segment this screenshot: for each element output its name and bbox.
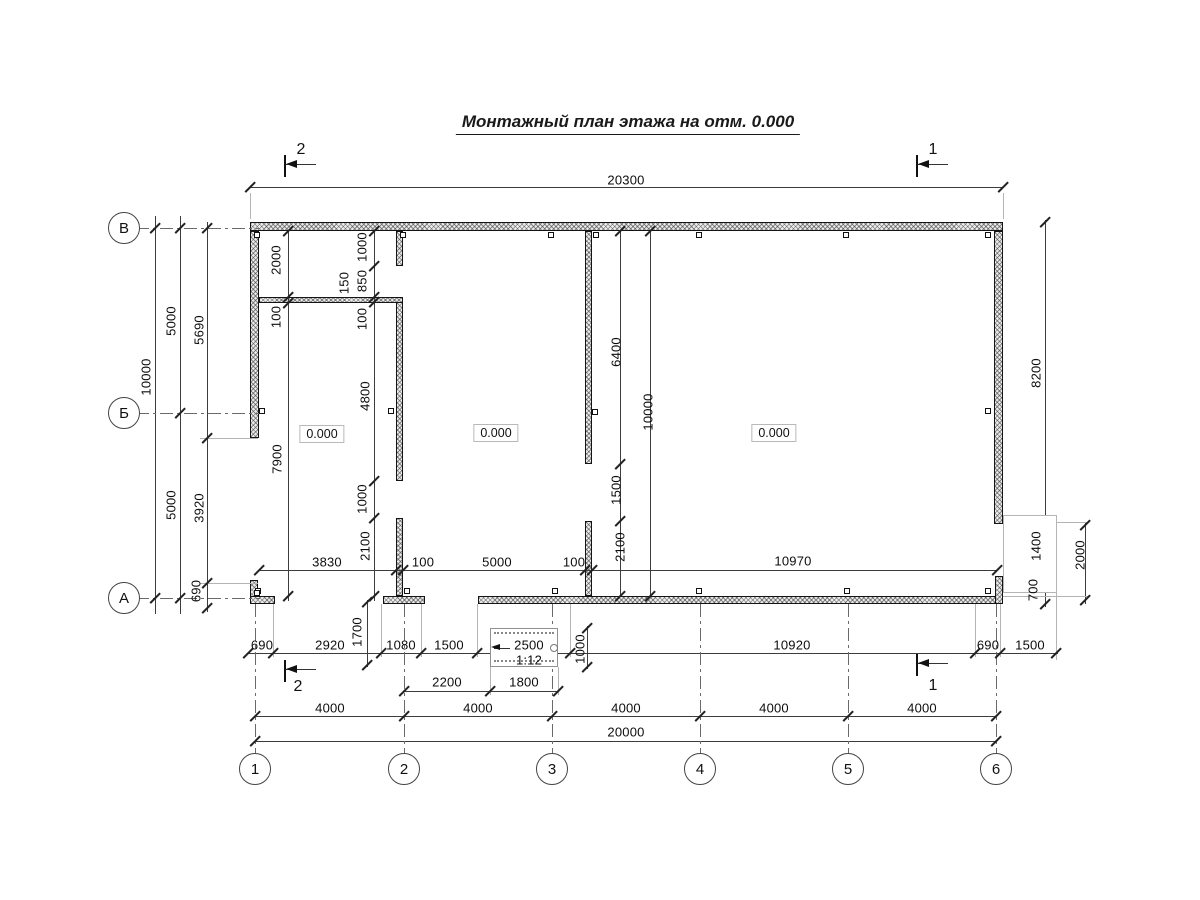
axis-line-vertical	[996, 604, 997, 754]
dimension-line	[255, 716, 996, 717]
axis-circle: Б	[108, 397, 140, 429]
extension-line	[250, 193, 251, 219]
axis-line-vertical	[404, 604, 405, 754]
dimension-label: 1500	[1015, 638, 1045, 653]
dimension-label: 5690	[192, 315, 207, 345]
dimension-label: 1500	[434, 638, 464, 653]
dimension-label: 3830	[312, 555, 342, 570]
dimension-label: 1400	[1029, 531, 1044, 561]
section-marker-number: 2	[297, 141, 306, 159]
wall-segment	[250, 231, 259, 438]
anchor-plate	[593, 232, 599, 238]
dimension-line	[404, 691, 558, 692]
extension-line	[421, 604, 422, 657]
floor-plan-drawing: Монтажный план этажа на отм. 0.000 20300…	[0, 0, 1200, 900]
drawing-title: Монтажный план этажа на отм. 0.000	[456, 112, 800, 135]
dimension-label: 150	[337, 272, 352, 294]
axis-circle: 1	[239, 753, 271, 785]
wall-segment	[396, 302, 403, 481]
axis-line-vertical	[700, 604, 701, 754]
dimension-label: 4000	[907, 701, 937, 716]
wall-segment	[478, 596, 1003, 604]
section-marker-arrow	[918, 160, 929, 168]
dimension-label: 1080	[386, 638, 416, 653]
axis-circle: А	[108, 582, 140, 614]
dimension-line	[288, 231, 289, 601]
section-marker-arrow	[918, 659, 929, 667]
dimension-label: 1:12	[516, 653, 542, 668]
extension-line	[570, 604, 571, 657]
dimension-label: 7900	[270, 444, 285, 474]
dimension-label: 4000	[463, 701, 493, 716]
extension-line	[975, 604, 976, 657]
dimension-label: 1000	[355, 484, 370, 514]
wall-segment	[250, 222, 1003, 231]
room-elevation-label: 0.000	[751, 424, 796, 442]
dimension-label: 690	[251, 638, 273, 653]
dimension-label: 10970	[774, 554, 811, 569]
axis-circle: 4	[684, 753, 716, 785]
section-marker-number: 1	[929, 677, 938, 695]
anchor-plate	[985, 232, 991, 238]
wall-segment	[585, 521, 592, 596]
axis-line-vertical	[552, 604, 553, 754]
dimension-label: 4000	[315, 701, 345, 716]
anchor-plate	[254, 590, 260, 596]
axis-circle: 5	[832, 753, 864, 785]
wall-segment	[396, 518, 403, 596]
extension-line	[1003, 193, 1004, 219]
dimension-line	[367, 600, 368, 667]
dimension-label: 20000	[607, 725, 644, 740]
dimension-label: 1000	[355, 232, 370, 262]
dimension-label: 6400	[609, 337, 624, 367]
anchor-plate	[696, 232, 702, 238]
dimension-label: 5000	[482, 555, 512, 570]
wall-segment	[995, 576, 1003, 604]
dimension-line	[207, 222, 208, 612]
dimension-line	[180, 216, 181, 614]
extension-line	[1000, 604, 1001, 657]
axis-circle: 2	[388, 753, 420, 785]
dimension-label: 10000	[139, 358, 154, 395]
dimension-label: 1700	[350, 617, 365, 647]
section-marker-number: 1	[929, 141, 938, 159]
dimension-label: 4000	[759, 701, 789, 716]
axis-line-horizontal	[136, 413, 264, 414]
dimension-label: 5000	[164, 306, 179, 336]
extension-line	[381, 604, 382, 657]
anchor-plate	[388, 408, 394, 414]
anchor-plate	[254, 232, 260, 238]
dimension-label: 1500	[609, 475, 624, 505]
dimension-label: 5000	[164, 490, 179, 520]
dimension-line	[155, 216, 156, 614]
ramp-arrow-head	[491, 644, 500, 650]
extension-line	[477, 604, 478, 657]
axis-circle: 6	[980, 753, 1012, 785]
dimension-label: 2100	[613, 532, 628, 562]
axis-line-vertical	[848, 604, 849, 754]
section-marker-arrow	[286, 665, 297, 673]
dimension-line	[248, 653, 1058, 654]
extension-line	[1003, 596, 1088, 597]
dimension-label: 100	[355, 308, 370, 330]
room-elevation-label: 0.000	[299, 425, 344, 443]
dimension-line	[374, 231, 375, 601]
anchor-plate	[404, 588, 410, 594]
anchor-plate	[548, 232, 554, 238]
dimension-label: 2100	[358, 531, 373, 561]
dimension-label: 2200	[432, 675, 462, 690]
dimension-label: 2920	[315, 638, 345, 653]
wall-segment	[383, 596, 425, 604]
axis-line-vertical	[255, 604, 256, 754]
dimension-label: 100	[269, 306, 284, 328]
room-elevation-label: 0.000	[473, 424, 518, 442]
dimension-label: 1800	[509, 675, 539, 690]
dimension-label: 3920	[192, 493, 207, 523]
dimension-line	[255, 741, 996, 742]
dimension-label: 100	[563, 555, 585, 570]
axis-circle: 3	[536, 753, 568, 785]
section-marker-arrow	[286, 160, 297, 168]
dimension-label: 700	[1026, 579, 1041, 601]
anchor-plate	[400, 232, 406, 238]
anchor-plate	[592, 409, 598, 415]
dimension-label: 690	[189, 580, 204, 602]
dimension-label: 10000	[641, 393, 656, 430]
anchor-plate	[552, 588, 558, 594]
dimension-label: 690	[977, 638, 999, 653]
ramp-arrow-circle	[550, 644, 558, 652]
dimension-label: 1000	[573, 634, 588, 664]
anchor-plate	[985, 408, 991, 414]
wall-segment	[585, 231, 592, 464]
dimension-label: 4800	[358, 381, 373, 411]
dimension-label: 100	[412, 555, 434, 570]
dimension-label: 8200	[1029, 358, 1044, 388]
axis-circle: В	[108, 212, 140, 244]
dimension-label: 2000	[269, 245, 284, 275]
dimension-line	[259, 570, 997, 571]
ramp-edge-dots	[494, 632, 554, 634]
wall-segment	[259, 297, 403, 303]
extension-line	[200, 583, 258, 584]
anchor-plate	[259, 408, 265, 414]
dimension-label: 10920	[773, 638, 810, 653]
wall-segment	[994, 231, 1003, 524]
dimension-label: 850	[355, 270, 370, 292]
section-marker-number: 2	[294, 678, 303, 696]
dimension-label: 2000	[1073, 540, 1088, 570]
extension-line	[200, 438, 258, 439]
dimension-label: 4000	[611, 701, 641, 716]
dimension-label: 2500	[514, 638, 544, 653]
anchor-plate	[985, 588, 991, 594]
dimension-label: 20300	[607, 173, 644, 188]
anchor-plate	[844, 588, 850, 594]
anchor-plate	[843, 232, 849, 238]
anchor-plate	[696, 588, 702, 594]
